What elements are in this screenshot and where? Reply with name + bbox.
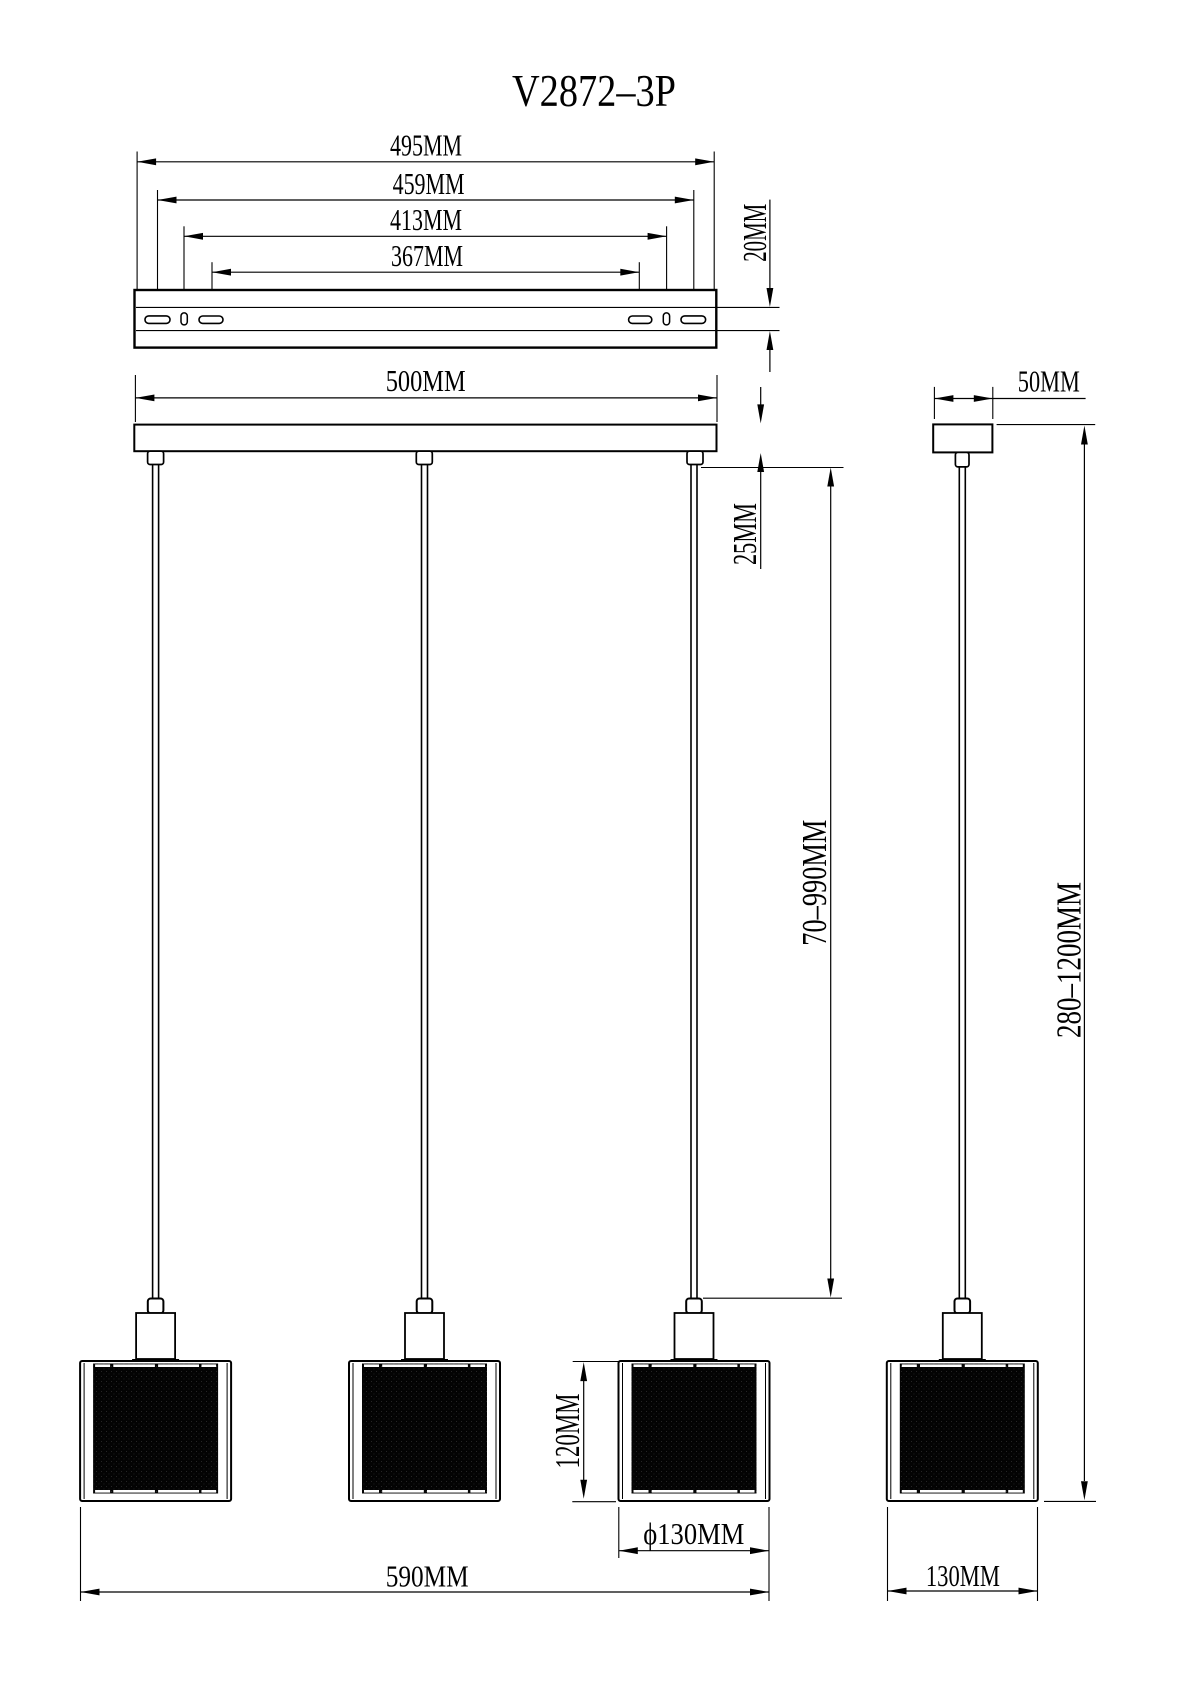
svg-text:367MM: 367MM (391, 238, 463, 273)
svg-text:590MM: 590MM (386, 1559, 469, 1594)
svg-text:280–1200MM: 280–1200MM (1050, 882, 1089, 1038)
svg-text:ϕ130MM: ϕ130MM (643, 1516, 744, 1551)
svg-text:50MM: 50MM (1018, 363, 1080, 398)
svg-text:130MM: 130MM (926, 1558, 1000, 1593)
svg-text:413MM: 413MM (390, 202, 462, 237)
svg-text:459MM: 459MM (393, 166, 465, 201)
svg-text:25MM: 25MM (727, 503, 764, 565)
svg-text:20MM: 20MM (737, 204, 774, 262)
svg-text:120MM: 120MM (548, 1394, 587, 1469)
svg-text:V2872–3P: V2872–3P (512, 66, 676, 116)
svg-text:70–990MM: 70–990MM (795, 820, 834, 946)
svg-text:500MM: 500MM (386, 363, 466, 398)
svg-text:495MM: 495MM (390, 127, 462, 162)
